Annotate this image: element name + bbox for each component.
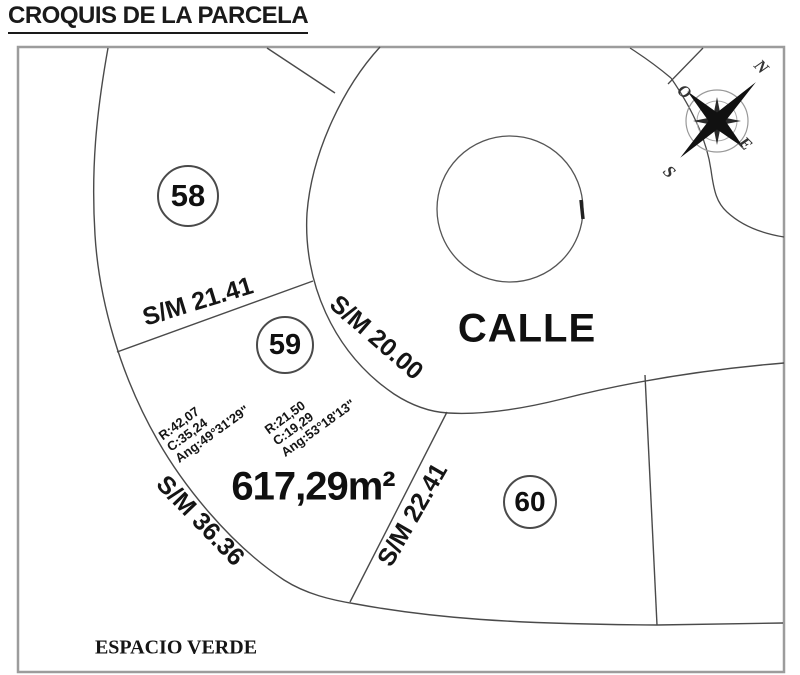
parcel-sketch-page: CROQUIS DE LA PARCELA bbox=[0, 0, 800, 675]
parcel-59-badge: 59 bbox=[256, 316, 314, 374]
top-right-lot-line-b bbox=[668, 48, 703, 84]
parcel-59-number: 59 bbox=[269, 329, 301, 362]
lot-line-north-of-58 bbox=[267, 48, 335, 93]
compass-rose-icon: N O E S bbox=[651, 52, 783, 184]
lot-line-60-east bbox=[645, 375, 657, 625]
parcel-58-badge: 58 bbox=[157, 165, 219, 227]
parcel-58-number: 58 bbox=[171, 178, 205, 214]
green-space-label: ESPACIO VERDE bbox=[95, 637, 257, 660]
compass-south-label: S bbox=[659, 162, 679, 182]
compass-west-label: O bbox=[674, 80, 696, 102]
parcel-area-label: 617,29m² bbox=[231, 465, 394, 510]
street-label: CALLE bbox=[458, 307, 596, 352]
sketch-linework: N O E S bbox=[0, 0, 800, 675]
top-right-lot-line-a bbox=[630, 48, 671, 78]
parcel-60-number: 60 bbox=[514, 486, 545, 518]
compass-north-label: N bbox=[750, 55, 773, 78]
top-right-street-curve bbox=[671, 78, 784, 237]
roundabout-circle bbox=[437, 136, 583, 282]
parcel-60-badge: 60 bbox=[503, 475, 557, 529]
roundabout-tick bbox=[581, 200, 583, 219]
compass-east-label: E bbox=[734, 132, 756, 154]
